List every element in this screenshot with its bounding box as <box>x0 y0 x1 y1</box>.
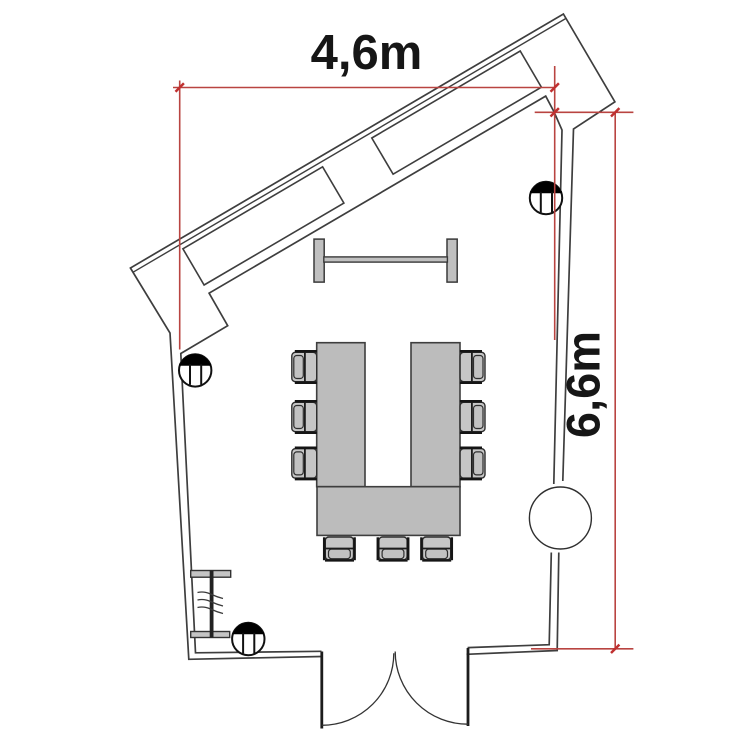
svg-text:6,6m: 6,6m <box>557 331 610 438</box>
svg-text:4,6m: 4,6m <box>311 26 423 80</box>
